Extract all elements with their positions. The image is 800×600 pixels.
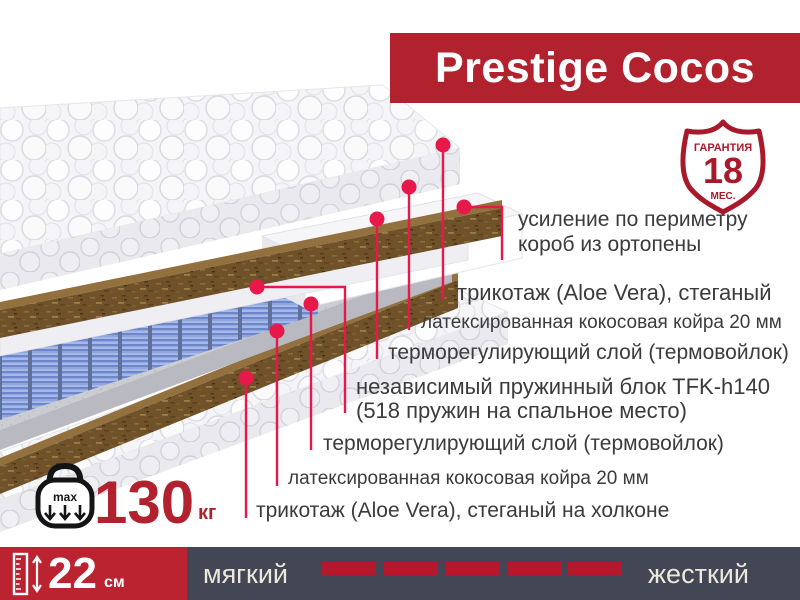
infographic-prestige-cocos: ГАРАНТИЯ 18 МЕС. max Prestige Cocos усил… — [0, 0, 800, 600]
height-panel: 22 см — [0, 547, 187, 600]
callout-perimeter-foam: усиление по периметру короб из ортопены — [518, 207, 748, 257]
callout-bottom-coir: латексированная кокосовая койра 20 мм — [288, 468, 649, 490]
down-arrows-icon — [45, 505, 85, 519]
callout-bottom-knit: трикотаж (Aloe Vera), стеганый на холкон… — [256, 499, 669, 524]
height-unit: см — [104, 574, 125, 592]
warranty-shield-icon: ГАРАНТИЯ 18 МЕС. — [683, 122, 763, 212]
callout-top-coir: латексированная кокосовая койра 20 мм — [421, 312, 782, 334]
callout-top-thermofelt: терморегулирующий слой (термовойлок) — [388, 341, 789, 366]
firmness-dash — [508, 562, 562, 575]
max-label: max — [53, 490, 77, 504]
product-title: Prestige Cocos — [435, 44, 755, 93]
firmness-dash — [322, 562, 376, 575]
bottom-info-bar: 22 см мягкий жесткий — [0, 547, 800, 600]
badge-number: 18 — [703, 150, 743, 191]
max-weight-unit: кг — [198, 502, 216, 525]
firmness-dash — [446, 562, 500, 575]
up-down-arrow-icon — [33, 557, 41, 591]
callout-bottom-thermofelt: терморегулирующий слой (термовойлок) — [323, 432, 724, 457]
badge-bottom-label: МЕС. — [711, 191, 736, 202]
firmness-soft-label: мягкий — [203, 559, 288, 590]
callout-spring-block: независимый пружинный блок TFK-h140 (518… — [356, 375, 770, 423]
firmness-dash — [568, 562, 622, 575]
max-weight-value: 130 — [94, 468, 194, 537]
height-value: 22 — [48, 549, 97, 599]
firmness-dash — [384, 562, 438, 575]
callout-top-knit: трикотаж (Aloe Vera), стеганый — [457, 280, 772, 306]
product-title-banner: Prestige Cocos — [390, 33, 800, 103]
firmness-hard-label: жесткий — [648, 559, 749, 590]
